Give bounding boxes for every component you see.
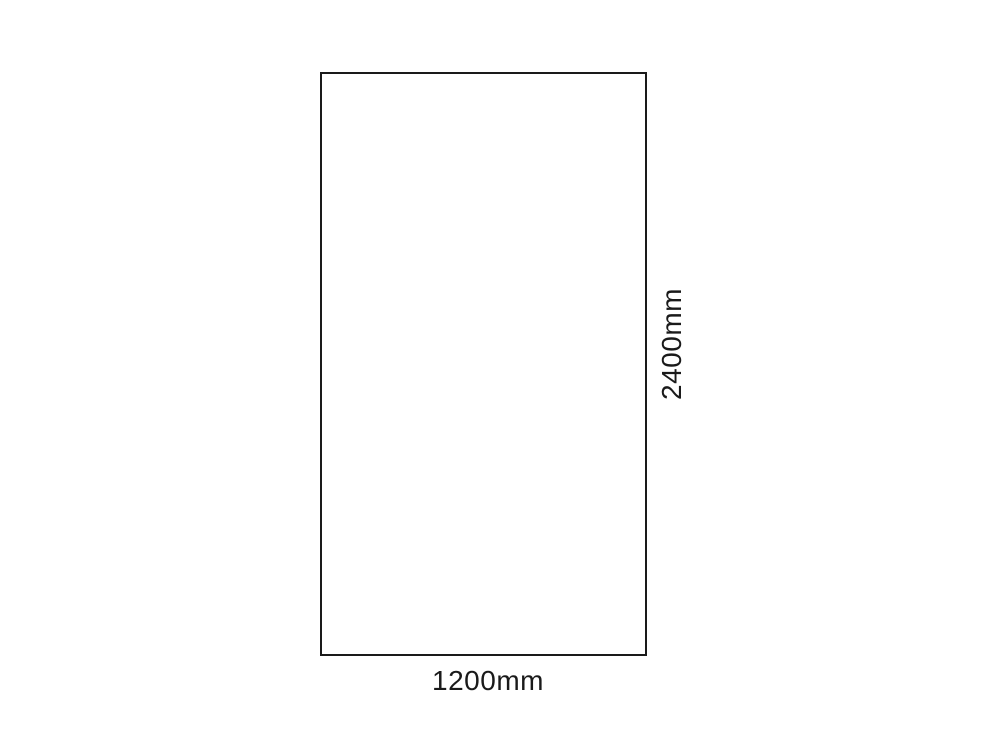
width-dimension-label: 1200mm	[432, 667, 544, 695]
height-dimension-label: 2400mm	[658, 288, 686, 400]
dimension-diagram: 2400mm 1200mm	[0, 0, 1000, 755]
panel-rectangle	[320, 72, 647, 656]
